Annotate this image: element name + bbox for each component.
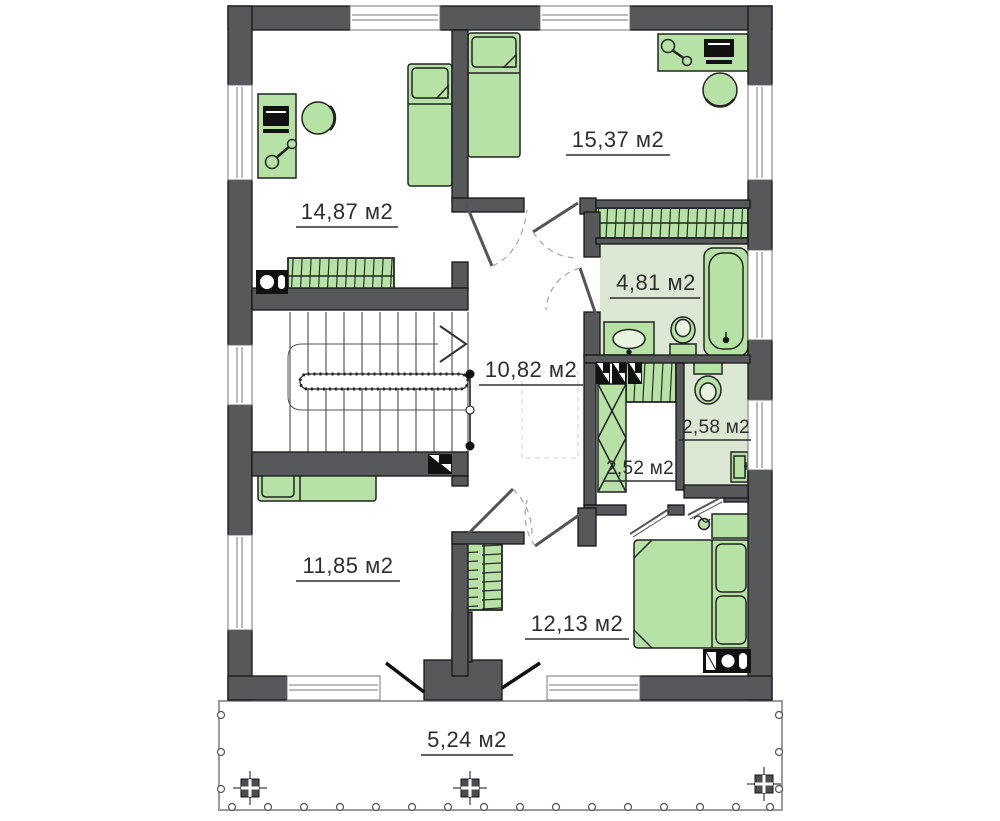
wall [452,30,468,202]
table-lamp-icon [699,519,710,530]
wardrobe [466,542,502,610]
toilet [670,317,696,356]
wall [596,238,748,244]
wall [748,180,772,250]
room-label-15-37: 15,37 м2 [572,127,665,152]
wall [452,532,468,676]
bathtub [704,248,748,356]
wall [452,262,468,290]
wall [748,6,772,85]
wall [452,198,524,212]
door-swing [533,203,578,258]
computer-icon [704,39,734,64]
room-label-5-24: 5,24 м2 [427,727,507,752]
wall [228,6,252,85]
window [540,6,630,30]
single-bed [408,64,452,186]
wall [596,200,750,208]
door-swing [525,500,582,546]
wall [640,676,772,700]
window [748,400,772,470]
window [228,85,252,180]
door-swing [546,268,596,315]
room-label-10-82: 10,82 м2 [485,357,578,382]
staircase [288,312,468,452]
nightstand [694,514,750,538]
window [748,250,772,340]
door-swing [466,204,527,266]
wall [748,340,772,400]
room-label-12-13: 12,13 м2 [531,611,624,636]
appliance-unit [703,649,751,673]
wall [228,180,252,345]
toilet [694,362,722,404]
window [228,535,252,630]
desk [258,94,297,178]
wall [440,6,540,30]
wall [228,405,252,535]
window [228,345,252,405]
desk [658,34,748,71]
wall [452,476,468,486]
window [350,6,440,30]
floor-plan-svg: 14,87 м2 15,37 м2 4,81 м2 10,82 м2 2,58 … [0,0,1000,821]
appliance-unit [256,270,288,294]
wall [684,485,748,498]
sink [604,322,654,355]
double-bed [634,540,750,648]
room-label-2-58: 2,58 м2 [682,417,750,438]
wall [584,212,600,257]
wardrobe [596,208,748,238]
wall [584,312,600,357]
room-label-4-81: 4,81 м2 [616,270,696,295]
room-label-14-87: 14,87 м2 [301,199,394,224]
wall [228,676,287,700]
wall [748,470,772,700]
room-label-11-85: 11,85 м2 [303,553,394,578]
wall [452,532,524,544]
stair-direction-arrow [440,326,466,362]
single-bed [468,33,520,157]
floor-plan: 14,87 м2 15,37 м2 4,81 м2 10,82 м2 2,58 … [0,0,1000,821]
room-label-2-52: 2,52 м2 [606,458,674,479]
wall [584,355,750,363]
window [748,85,772,180]
window [287,676,380,700]
door-swing [468,489,532,534]
window [547,676,640,700]
wall [584,363,596,505]
vent-shaft-icon [428,454,452,474]
stair-handrail [300,374,468,389]
vent-shaft-icon [596,362,642,384]
